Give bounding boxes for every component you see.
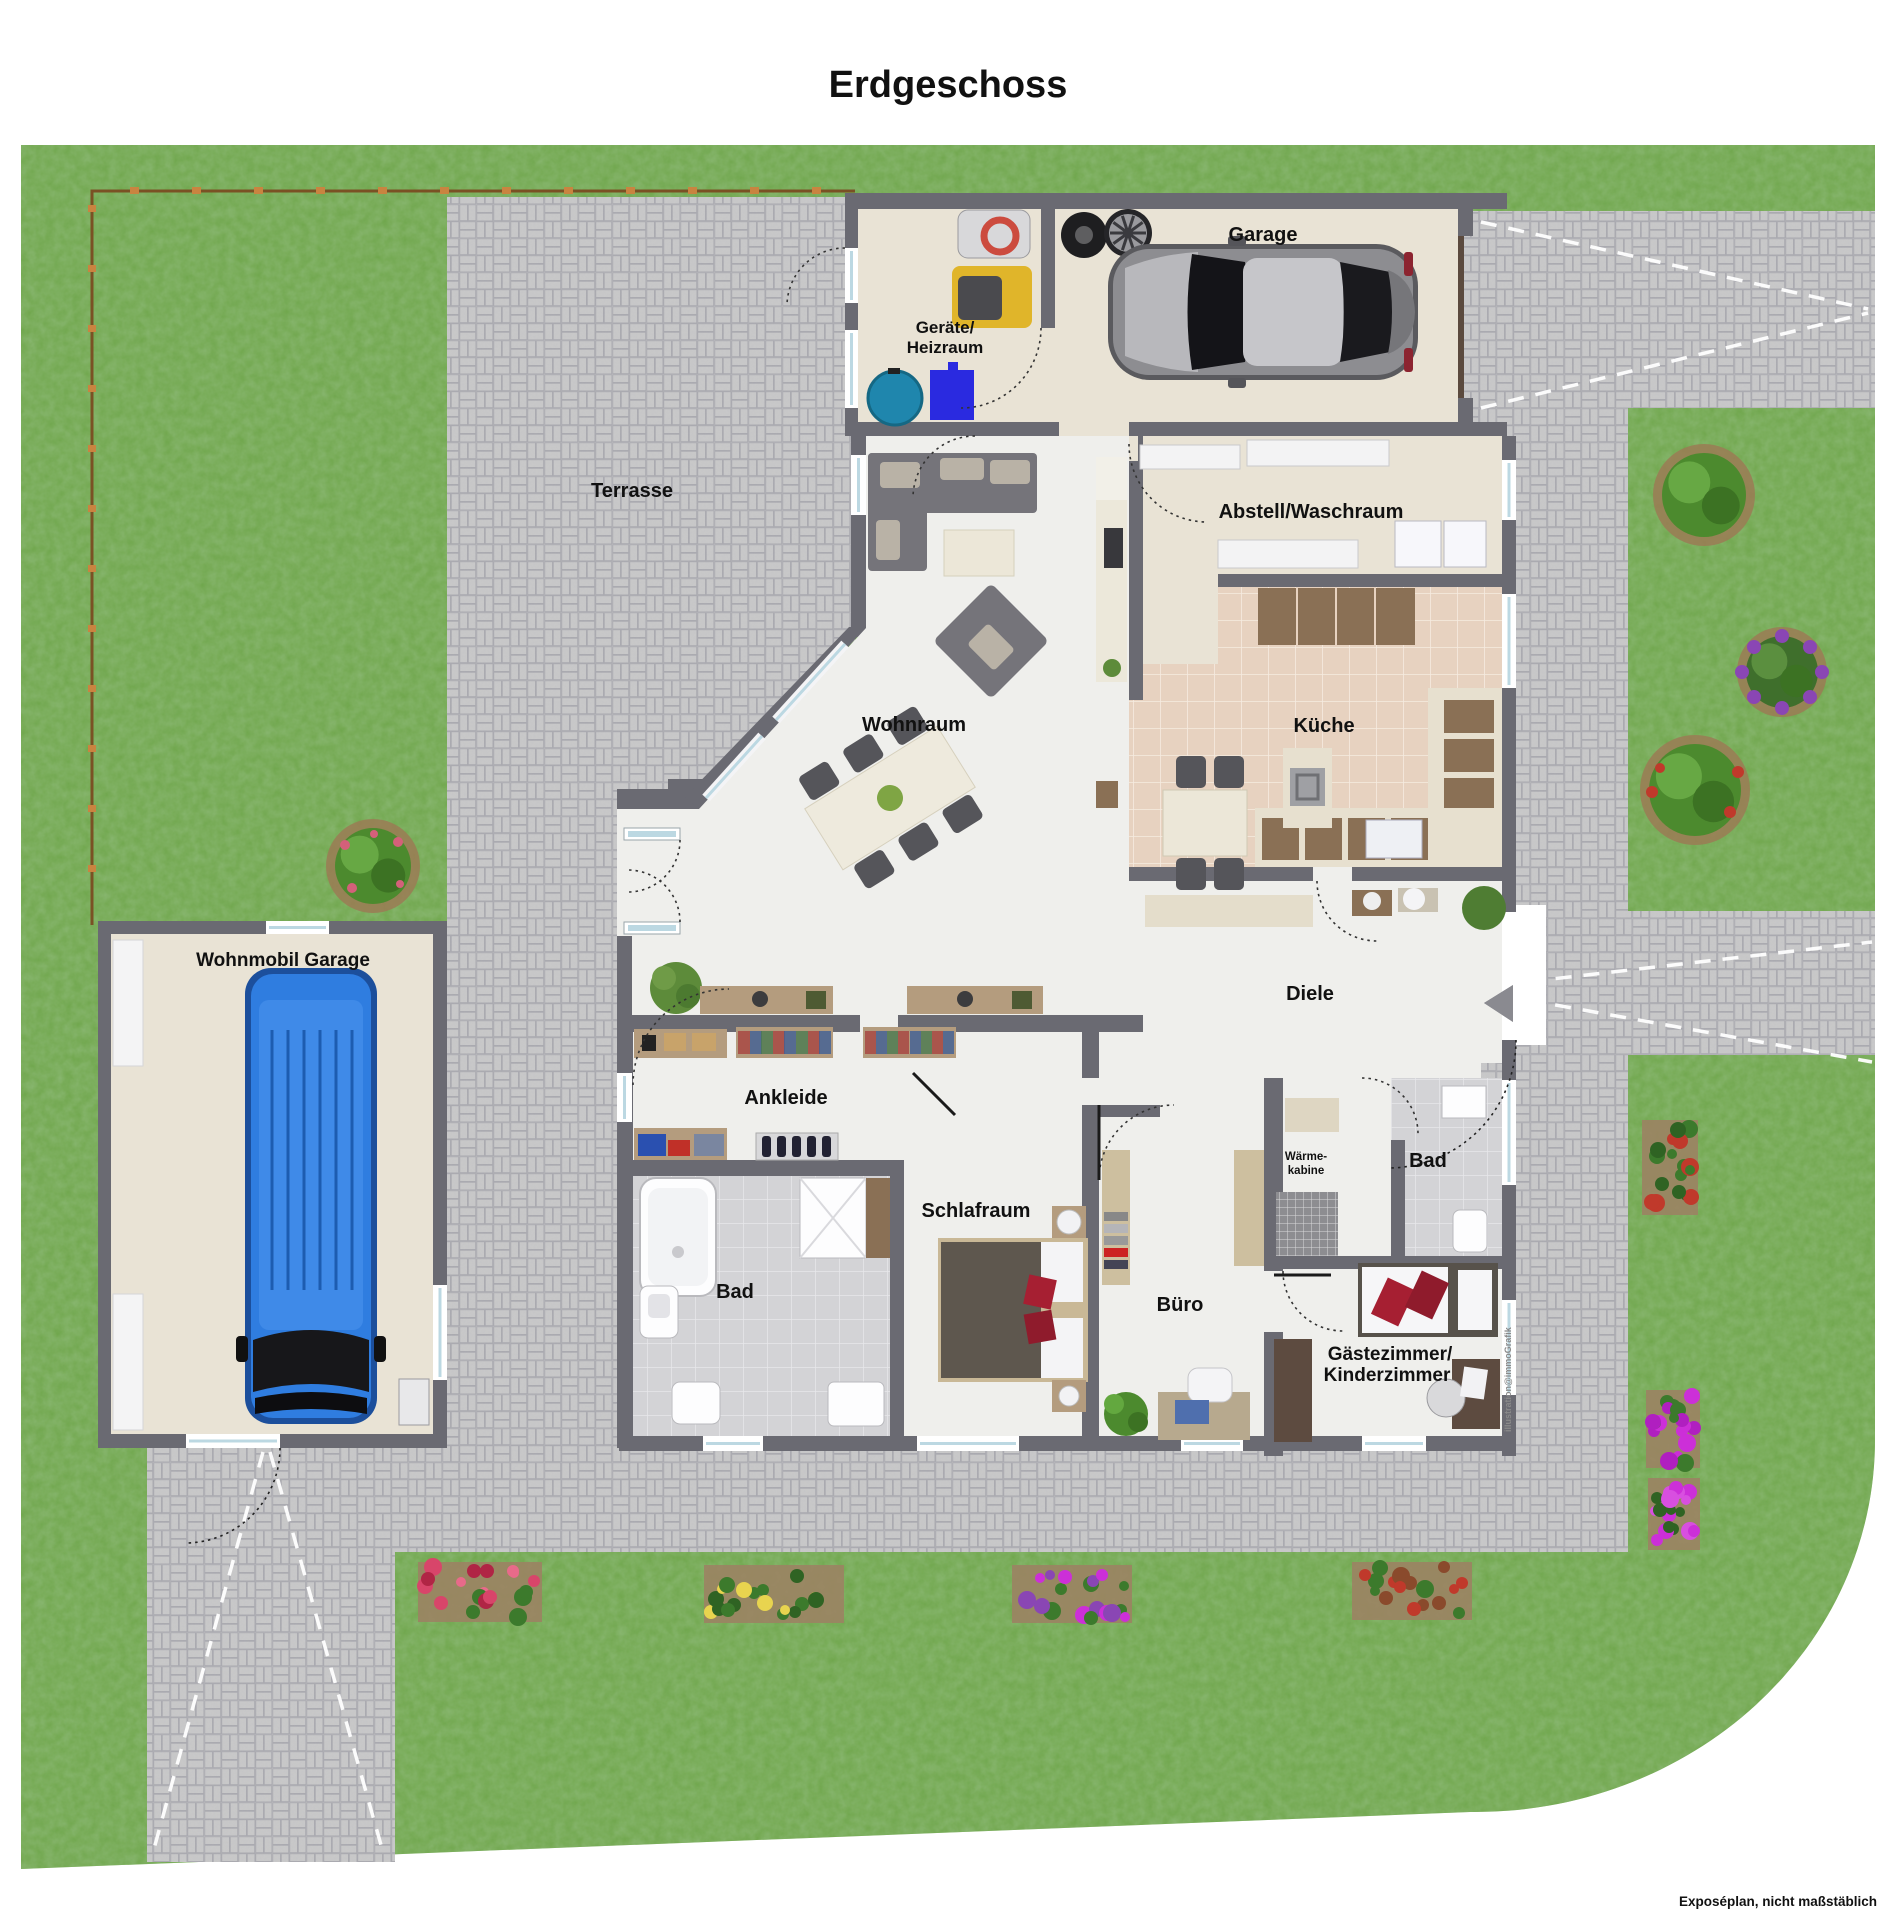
svg-text:Wohnmobil Garage: Wohnmobil Garage [196,950,370,971]
svg-text:Diele: Diele [1286,983,1334,1005]
svg-text:Heizraum: Heizraum [907,338,984,357]
svg-text:Erdgeschoss: Erdgeschoss [829,64,1068,106]
svg-text:illustration@immoGrafik: illustration@immoGrafik [1503,1326,1513,1432]
svg-text:Terrasse: Terrasse [591,480,673,502]
svg-text:Ankleide: Ankleide [744,1087,827,1109]
svg-text:Wohnraum: Wohnraum [862,714,966,736]
svg-text:Büro: Büro [1157,1294,1204,1316]
svg-text:Gästezimmer/: Gästezimmer/ [1328,1344,1453,1365]
svg-text:Schlafraum: Schlafraum [922,1200,1031,1222]
svg-text:Bad: Bad [1409,1150,1447,1172]
svg-text:Abstell/Waschraum: Abstell/Waschraum [1219,501,1404,523]
svg-text:Exposéplan, nicht maßstäblich: Exposéplan, nicht maßstäblich [1679,1894,1877,1909]
svg-text:Wärme-: Wärme- [1285,1151,1327,1163]
svg-text:Bad: Bad [716,1281,754,1303]
svg-text:Garage: Garage [1229,224,1298,246]
svg-text:kabine: kabine [1288,1165,1324,1177]
svg-text:Kinderzimmer: Kinderzimmer [1324,1365,1451,1386]
svg-text:Küche: Küche [1293,715,1354,737]
svg-text:Geräte/: Geräte/ [916,318,975,337]
